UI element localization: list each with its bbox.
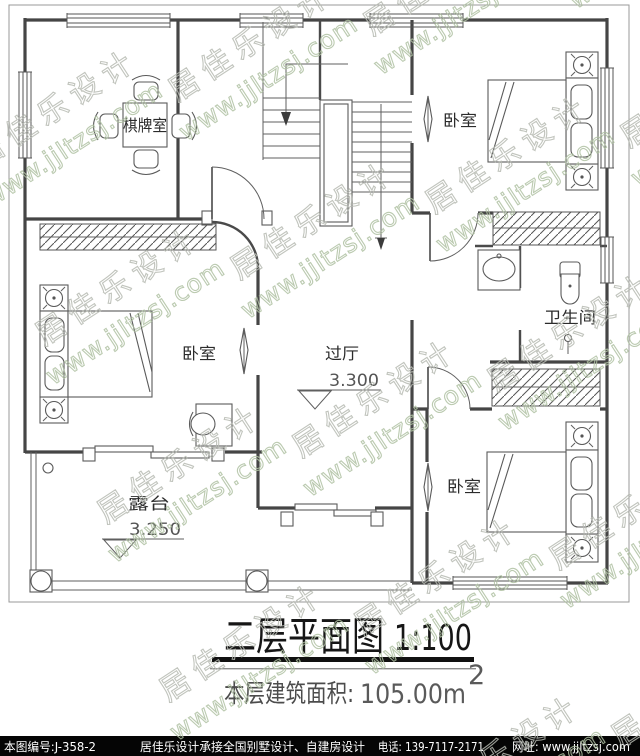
window-top-left bbox=[67, 13, 170, 28]
floor-plan-page: 棋牌室 卧室 卧室 卧室 过厅 卫生间 露台 3.300 3.250 二层平面图… bbox=[0, 0, 640, 756]
title-underline-thick bbox=[212, 657, 474, 662]
floor-drain bbox=[43, 463, 53, 473]
area-value: 105.00m bbox=[360, 679, 466, 710]
watermark-tile: 居佳乐设计www.jjltzsj.com bbox=[541, 0, 640, 15]
watermark-tile: 居佳乐设计www.jjltzsj.com bbox=[80, 396, 292, 568]
toilet bbox=[560, 262, 580, 304]
area-superscript: 2 bbox=[468, 660, 485, 691]
room-label-bedroom-ml: 卧室 bbox=[182, 344, 216, 363]
door-leaf-tr-bedroom bbox=[424, 96, 432, 142]
sliding-door-hallway-terrace bbox=[281, 504, 383, 526]
bathroom-sink bbox=[478, 250, 520, 290]
footer-company: 居佳乐设计承接全国别墅设计、自建房设计 bbox=[140, 739, 365, 754]
door-chess-room bbox=[202, 167, 272, 225]
door-leaf-br-bedroom bbox=[424, 463, 432, 511]
floor-plan-svg: 棋牌室 卧室 卧室 卧室 过厅 卫生间 露台 3.300 3.250 二层平面图… bbox=[0, 0, 640, 756]
footer-phone: 电话: 139-7117-2171 bbox=[378, 740, 484, 754]
footer-drawing-no: 本图编号:J-358-2 bbox=[4, 739, 96, 754]
watermark-tile: 居佳乐设计www.jjltzsj.com bbox=[346, 0, 558, 81]
watermark-tile: 居佳乐设计www.jjltzsj.com bbox=[151, 0, 363, 147]
svg-text:居佳乐设计: 居佳乐设计 bbox=[605, 622, 640, 755]
room-label-hallway: 过厅 bbox=[325, 344, 359, 363]
room-label-bedroom-tr: 卧室 bbox=[443, 111, 477, 130]
room-label-bedroom-br: 卧室 bbox=[447, 477, 481, 496]
svg-text:居佳乐设计: 居佳乐设计 bbox=[614, 22, 640, 155]
window-bathroom bbox=[600, 237, 614, 283]
door-leaf-ml-bedroom bbox=[240, 328, 248, 374]
